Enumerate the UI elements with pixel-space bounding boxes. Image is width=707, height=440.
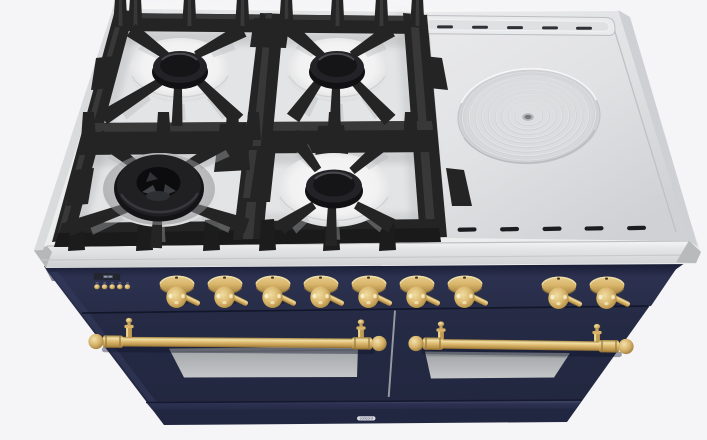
svg-text:concord: concord [360,417,373,421]
